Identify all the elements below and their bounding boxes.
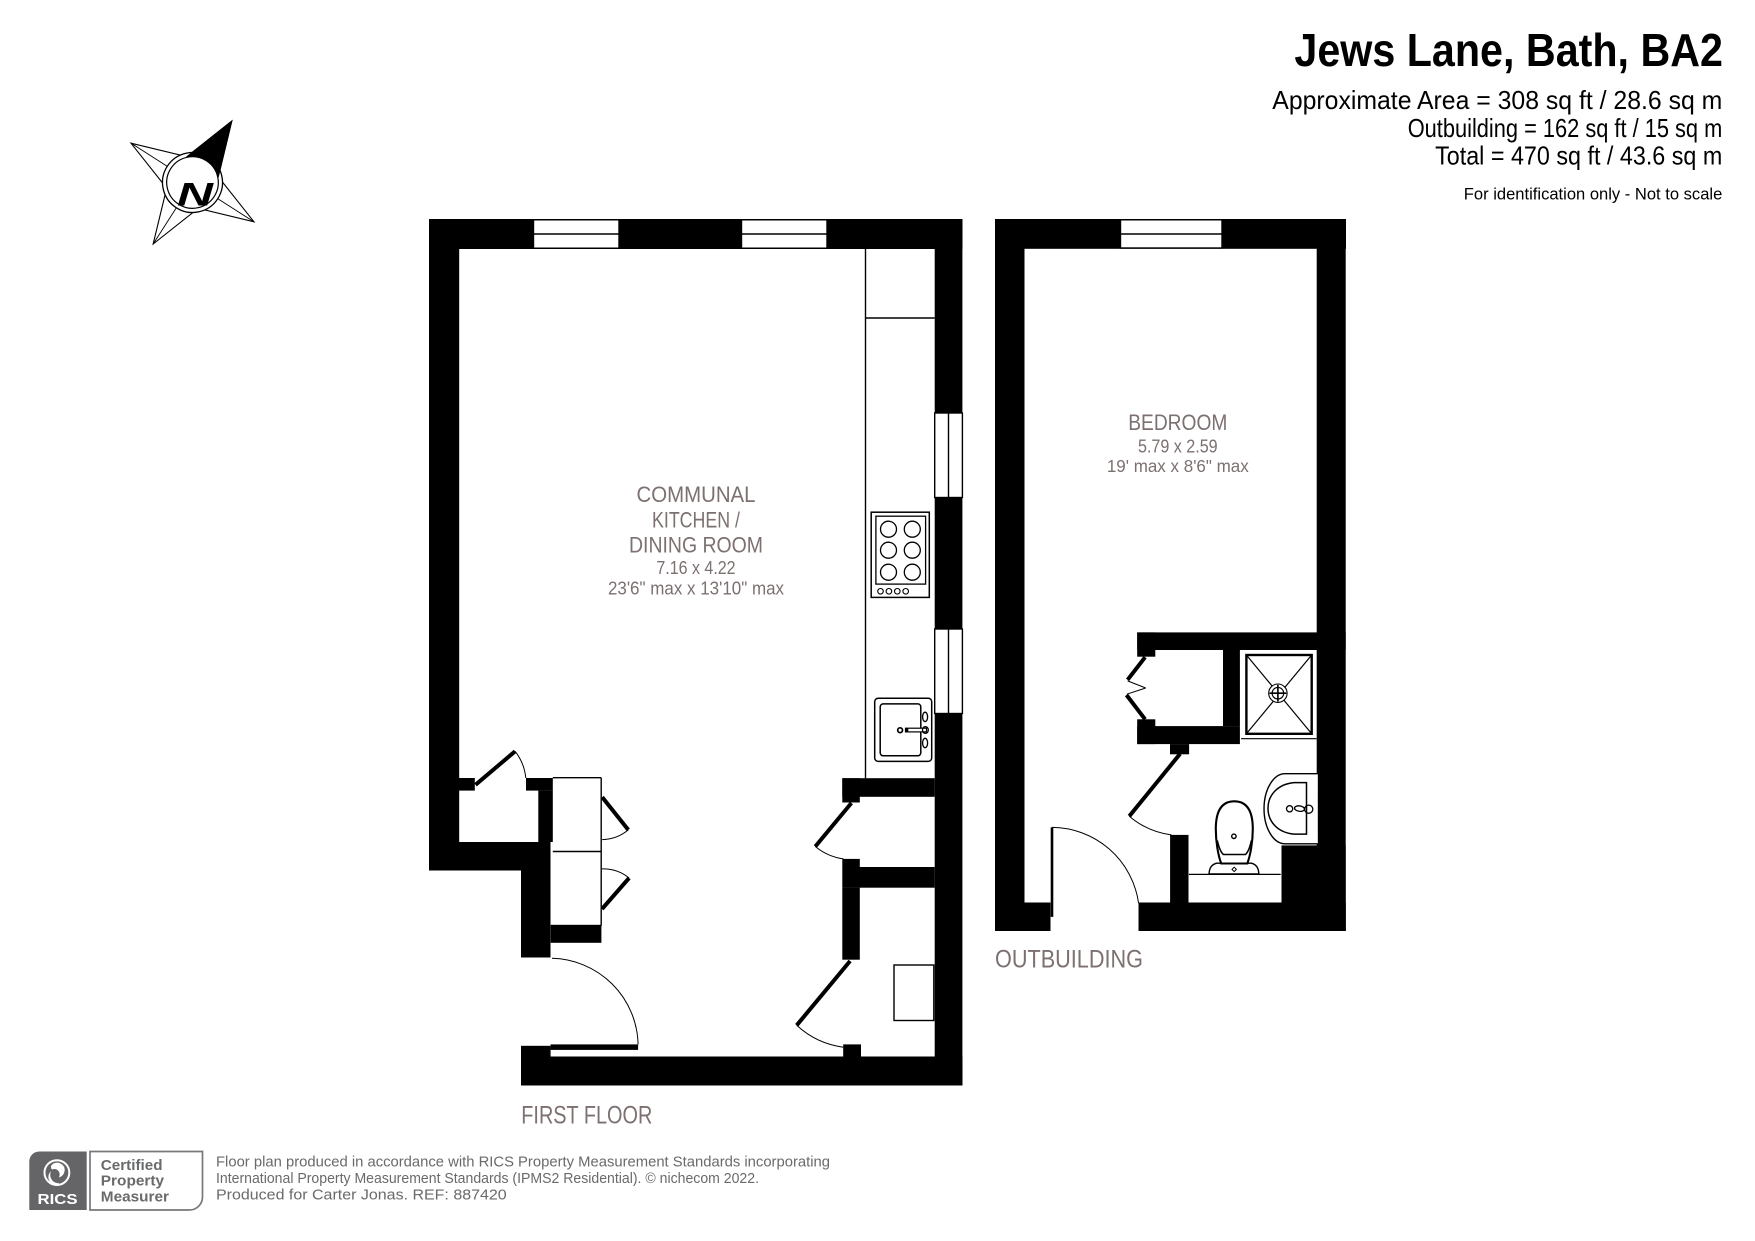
svg-text:Jews Lane, Bath, BA2: Jews Lane, Bath, BA2 <box>1294 24 1723 76</box>
svg-text:FIRST FLOOR: FIRST FLOOR <box>521 1101 652 1129</box>
svg-text:7.16 x 4.22: 7.16 x 4.22 <box>656 558 735 578</box>
svg-text:Property: Property <box>101 1174 164 1190</box>
svg-text:5.79 x 2.59: 5.79 x 2.59 <box>1138 437 1218 457</box>
svg-text:For identification only - Not: For identification only - Not to scale <box>1464 184 1723 203</box>
svg-text:Outbuilding = 162 sq ft / 15 s: Outbuilding = 162 sq ft / 15 sq m <box>1408 113 1723 143</box>
svg-text:Certified: Certified <box>101 1158 163 1174</box>
svg-text:23'6" max x 13'10" max: 23'6" max x 13'10" max <box>608 578 784 598</box>
svg-text:Produced for Carter Jonas. R: Produced for Carter Jonas. REF: 887420 <box>216 1187 507 1204</box>
svg-text:Measurer: Measurer <box>101 1189 170 1205</box>
svg-text:N: N <box>177 176 214 212</box>
svg-text:COMMUNAL: COMMUNAL <box>637 482 756 507</box>
svg-text:RICS: RICS <box>38 1191 78 1208</box>
svg-text:International Property Measure: International Property Measurement Stand… <box>216 1170 759 1187</box>
svg-text:OUTBUILDING: OUTBUILDING <box>995 946 1143 974</box>
svg-text:Floor plan produced in accorda: Floor plan produced in accordance with R… <box>216 1153 830 1170</box>
svg-text:Total = 470 sq ft / 43.6 sq m: Total = 470 sq ft / 43.6 sq m <box>1435 140 1722 170</box>
svg-text:DINING ROOM: DINING ROOM <box>629 533 763 558</box>
svg-text:KITCHEN /: KITCHEN / <box>652 508 741 533</box>
svg-text:Approximate Area = 308 sq ft /: Approximate Area = 308 sq ft / 28.6 sq m <box>1272 85 1722 115</box>
svg-text:BEDROOM: BEDROOM <box>1128 410 1227 435</box>
svg-text:19' max x 8'6" max: 19' max x 8'6" max <box>1107 456 1249 476</box>
